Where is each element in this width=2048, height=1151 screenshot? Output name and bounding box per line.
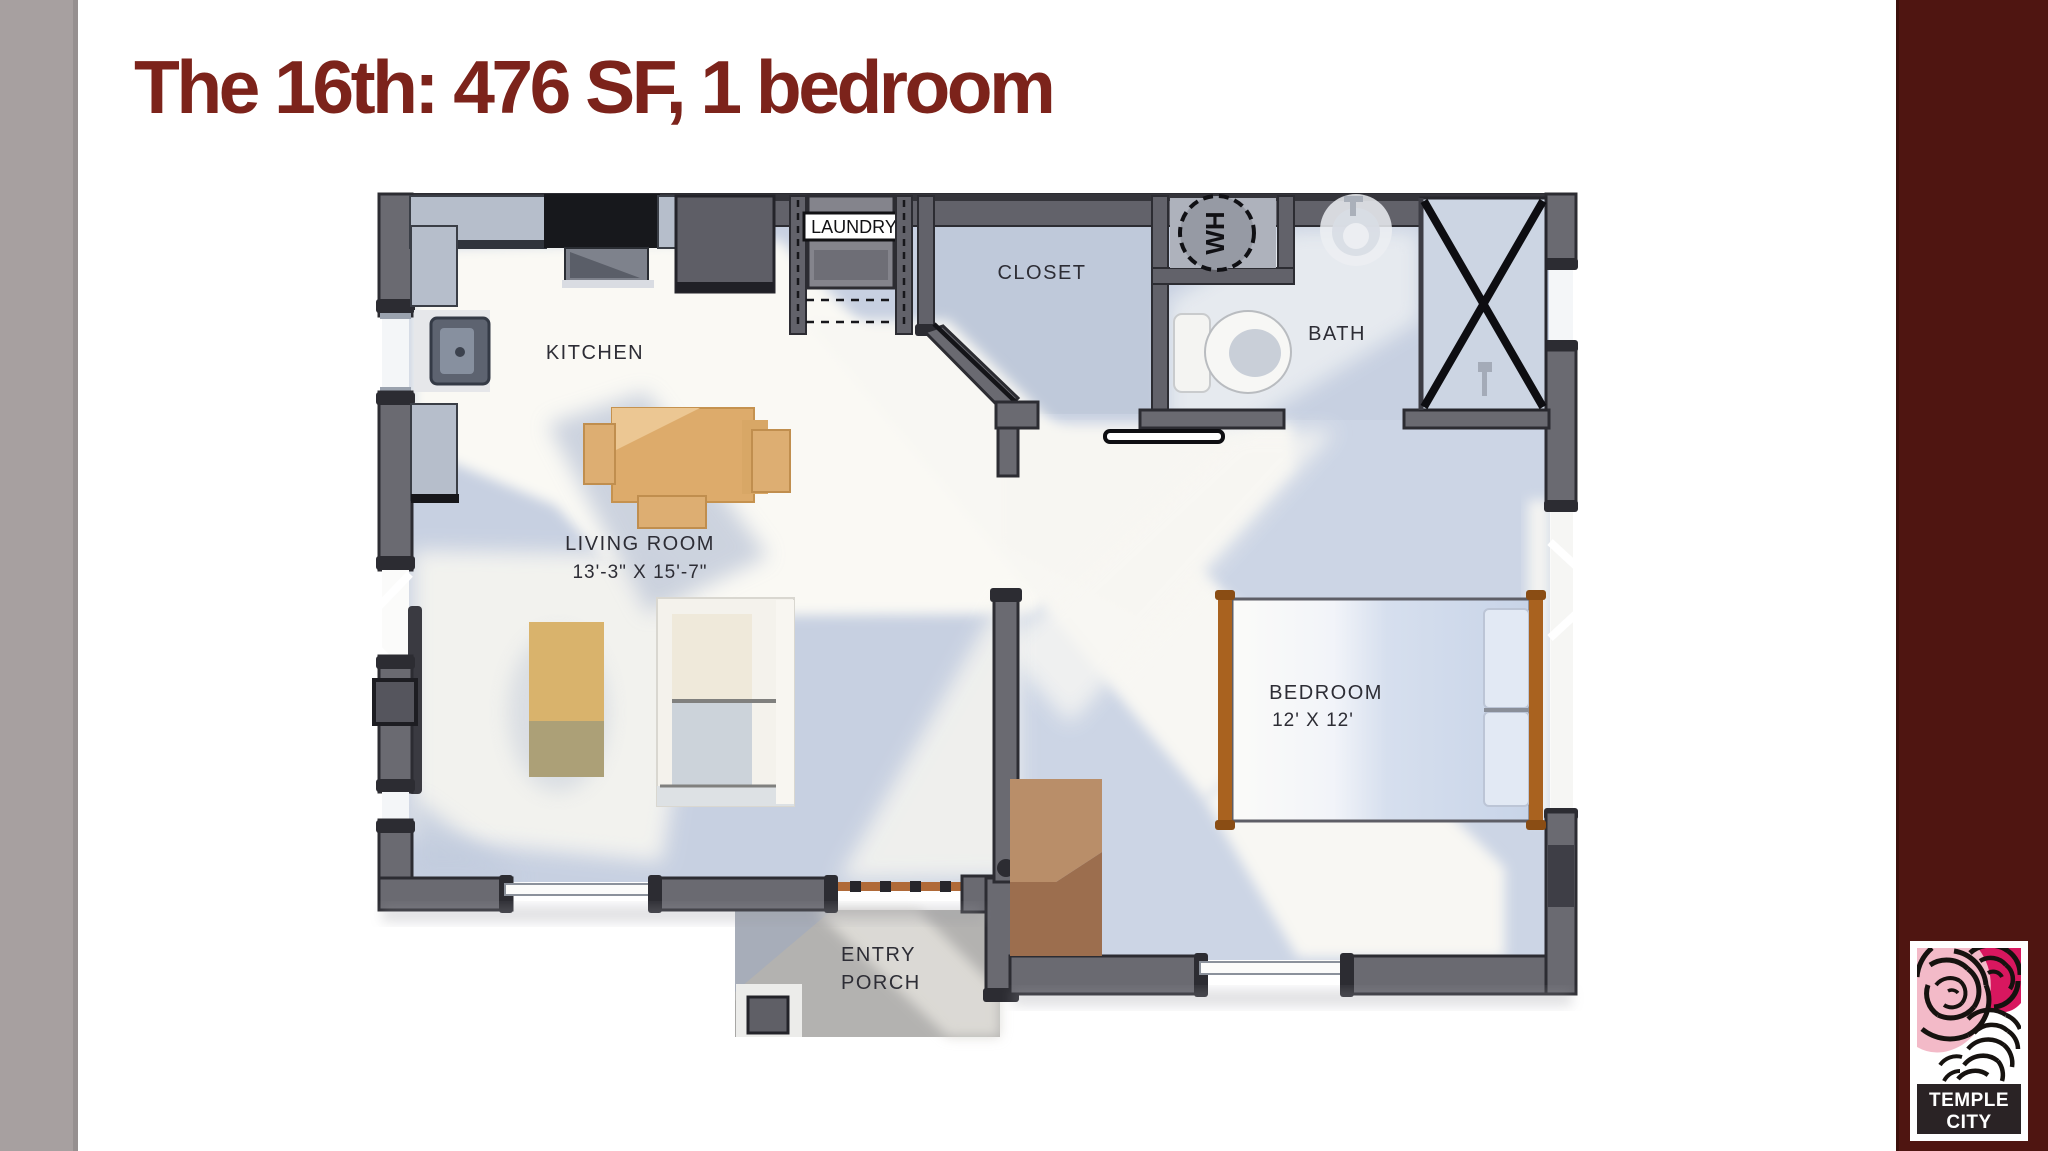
svg-text:WH: WH: [1200, 211, 1230, 254]
svg-text:13'-3" X 15'-7": 13'-3" X 15'-7": [572, 562, 707, 583]
svg-text:PORCH: PORCH: [841, 972, 921, 994]
svg-text:12' X 12': 12' X 12': [1272, 710, 1354, 731]
svg-text:CLOSET: CLOSET: [997, 262, 1086, 284]
svg-text:BEDROOM: BEDROOM: [1269, 682, 1383, 704]
svg-text:KITCHEN: KITCHEN: [546, 342, 644, 364]
svg-text:LIVING ROOM: LIVING ROOM: [565, 533, 715, 555]
svg-text:ENTRY: ENTRY: [841, 944, 916, 966]
svg-text:CITY: CITY: [1946, 1112, 1991, 1133]
svg-text:TEMPLE: TEMPLE: [1929, 1090, 2009, 1111]
svg-text:LAUNDRY: LAUNDRY: [811, 217, 897, 237]
svg-text:BATH: BATH: [1308, 323, 1366, 345]
